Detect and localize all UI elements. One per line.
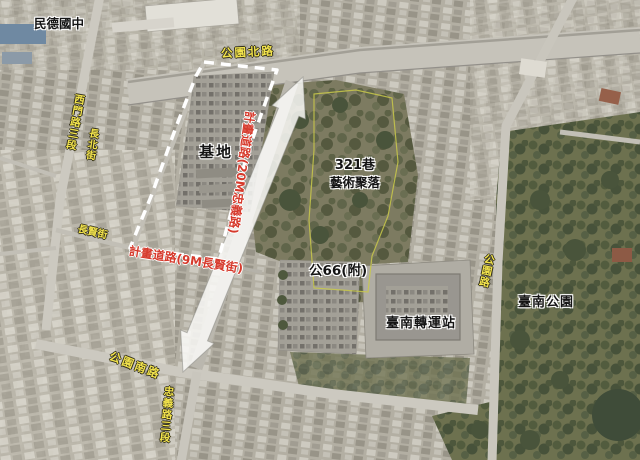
label-tainan-park: 臺南公園 (518, 296, 574, 311)
map-screenshot: 民德國中 公園北路 西門路三段 長北街 長賢街 公園南路 忠義路三段 公園路 基… (0, 0, 640, 460)
label-tainan-transfer-station: 臺南轉運站 (386, 317, 456, 332)
label-gong66: 公66(附) (309, 264, 367, 280)
label-site: 基地 (199, 144, 233, 161)
label-lane321: 321巷 (319, 159, 391, 174)
label-minde-junior-high: 民德國中 (34, 17, 84, 31)
label-lane321-art-settlement: 藝術聚落 (319, 176, 391, 190)
label-park-north-road: 公園北路 (221, 45, 276, 61)
transfer-station-complex (362, 260, 474, 358)
